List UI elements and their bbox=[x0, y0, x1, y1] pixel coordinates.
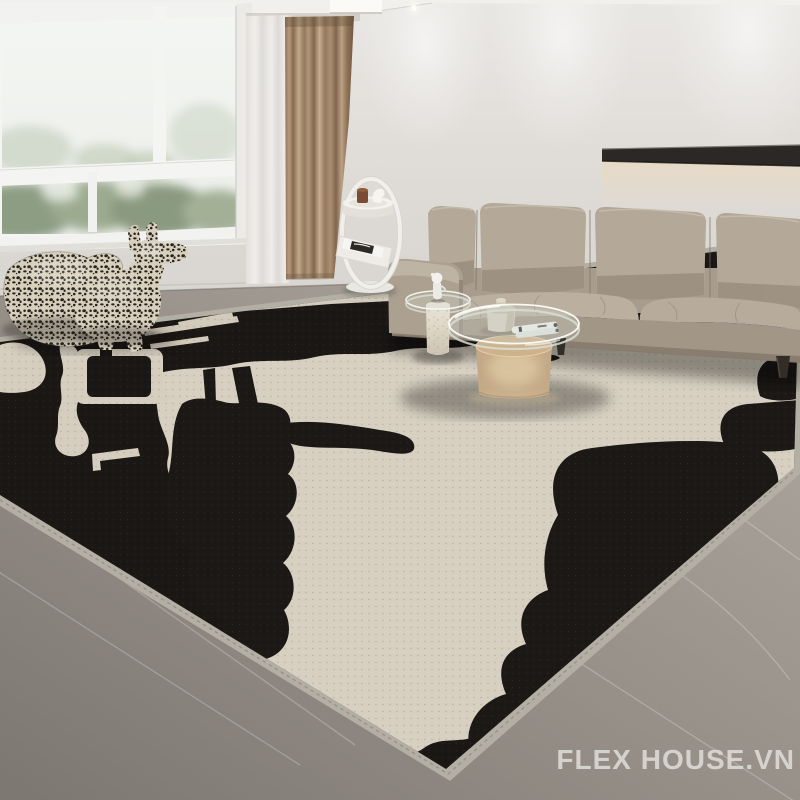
window bbox=[0, 2, 253, 252]
living-room-photo: FLEX HOUSE.VN bbox=[0, 0, 800, 800]
wall-shelf bbox=[602, 145, 800, 210]
decor-candle bbox=[357, 188, 368, 203]
wall-light-pools bbox=[360, 0, 800, 152]
ceiling-cove-light bbox=[330, 0, 382, 13]
watermark: FLEX HOUSE.VN bbox=[556, 744, 795, 776]
scene bbox=[0, 0, 800, 800]
sheer-curtain bbox=[246, 15, 292, 284]
